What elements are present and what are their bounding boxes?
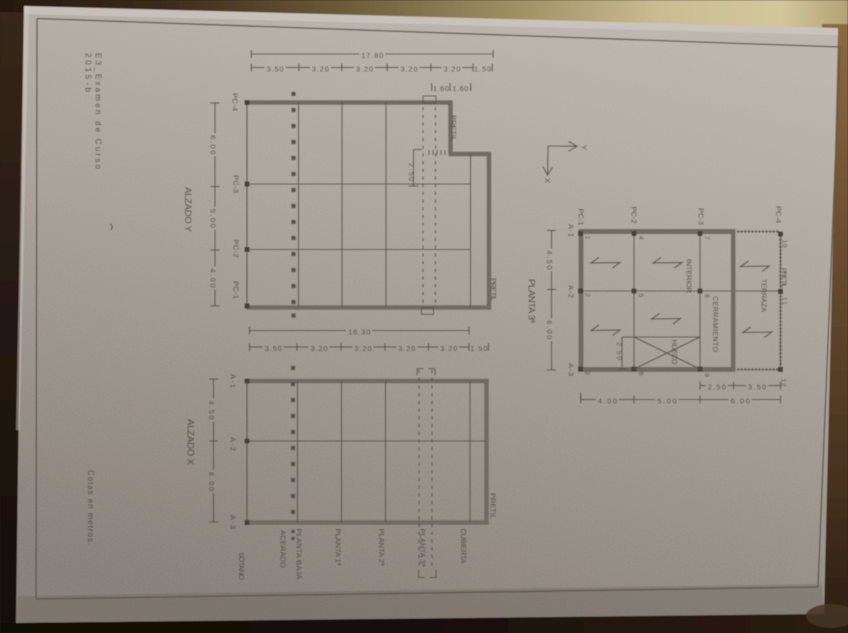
svg-text:Y: Y [580,145,589,150]
svg-text:3.20: 3.20 [440,344,457,353]
svg-text:A-2: A-2 [229,437,238,451]
svg-text:PC-4: PC-4 [774,206,783,223]
svg-text:CUBIERTA: CUBIERTA [459,529,468,564]
svg-text:3: 3 [584,371,591,375]
svg-text:TERRAZA: TERRAZA [760,279,769,312]
svg-text:11: 11 [780,297,787,305]
svg-text:PRETIL: PRETIL [449,115,458,141]
svg-text:PC-2: PC-2 [630,207,639,224]
svg-text:A-2: A-2 [567,285,576,298]
svg-text:6: 6 [637,372,644,376]
svg-text:ALZADO X: ALZADO X [185,419,196,466]
svg-text:1: 1 [584,236,591,240]
svg-text:3.50: 3.50 [267,65,284,74]
svg-text:16.30: 16.30 [348,328,370,337]
svg-text:1.50: 1.50 [470,344,487,353]
svg-text:4.00: 4.00 [209,269,218,288]
svg-text:HUECO: HUECO [670,340,679,365]
svg-text:ALZADO Y: ALZADO Y [182,187,193,233]
svg-text:SÓTANO: SÓTANO [237,552,246,580]
svg-text:4.00: 4.00 [598,397,617,406]
svg-text:17.80: 17.80 [361,51,383,60]
svg-text:PLANTA 3ª: PLANTA 3ª [526,279,537,323]
svg-text:PC-2: PC-2 [232,240,241,258]
svg-text:3.20: 3.20 [398,344,415,353]
svg-text:3.20: 3.20 [312,65,329,74]
svg-text:5.00: 5.00 [658,397,677,406]
svg-text:9: 9 [703,373,710,377]
svg-text:ACERADO: ACERADO [279,530,288,568]
svg-text:2: 2 [584,293,591,297]
svg-text:8: 8 [703,294,710,298]
svg-text:PC-4: PC-4 [231,93,240,111]
svg-text:PRETIL: PRETIL [489,493,498,519]
svg-text:PC-3: PC-3 [232,175,241,193]
svg-text:A-3: A-3 [567,363,576,376]
svg-text:PC-1: PC-1 [232,281,241,299]
svg-text:5.00: 5.00 [209,209,218,228]
svg-text:2.50: 2.50 [708,383,726,392]
svg-text:2.50: 2.50 [615,342,622,360]
svg-text:1.60: 1.60 [433,84,449,93]
svg-text:6.00: 6.00 [731,397,750,406]
svg-text:10: 10 [780,240,787,248]
svg-text:PLANTA 3ª: PLANTA 3ª [418,529,427,567]
svg-text:1.50: 1.50 [474,65,491,74]
svg-text:3.20: 3.20 [356,65,373,74]
svg-text:X: X [543,178,552,183]
svg-text:A-3: A-3 [229,515,238,529]
svg-text:4: 4 [637,236,644,240]
svg-text:4.50: 4.50 [207,401,216,420]
svg-text:PRETIL: PRETIL [780,268,787,288]
svg-text:PLANTA BAJA: PLANTA BAJA [295,529,304,580]
svg-text:3.20: 3.20 [311,344,328,353]
svg-text:Cotas en metros.: Cotas en metros. [86,470,95,545]
svg-text:A-1: A-1 [567,224,576,237]
svg-text:PLANTA 2ª: PLANTA 2ª [377,529,386,566]
svg-text:1.60: 1.60 [452,84,468,93]
svg-text:3.20: 3.20 [355,344,372,353]
svg-text:CERRAMIENTO: CERRAMIENTO [711,296,720,352]
svg-text:6.00: 6.00 [545,320,554,339]
svg-text:PC-3: PC-3 [697,208,706,225]
svg-text:A-1: A-1 [229,374,238,388]
svg-text:INTERIOR: INTERIOR [685,259,694,293]
svg-text:PLANTA 1ª: PLANTA 1ª [334,529,343,566]
svg-text:3.20: 3.20 [401,65,418,74]
svg-text:PC-1: PC-1 [577,209,586,226]
svg-text:3.20: 3.20 [443,65,460,74]
svg-text:3.50: 3.50 [265,344,282,353]
svg-text:4.50: 4.50 [545,251,554,270]
svg-text:3.50: 3.50 [748,383,766,392]
svg-text:2.50: 2.50 [407,163,414,181]
svg-text:5: 5 [637,294,644,298]
svg-text:PRETIL: PRETIL [489,278,498,301]
svg-text:6.00: 6.00 [209,135,218,154]
svg-text:6.00: 6.00 [207,472,216,491]
svg-text:7: 7 [703,236,710,240]
